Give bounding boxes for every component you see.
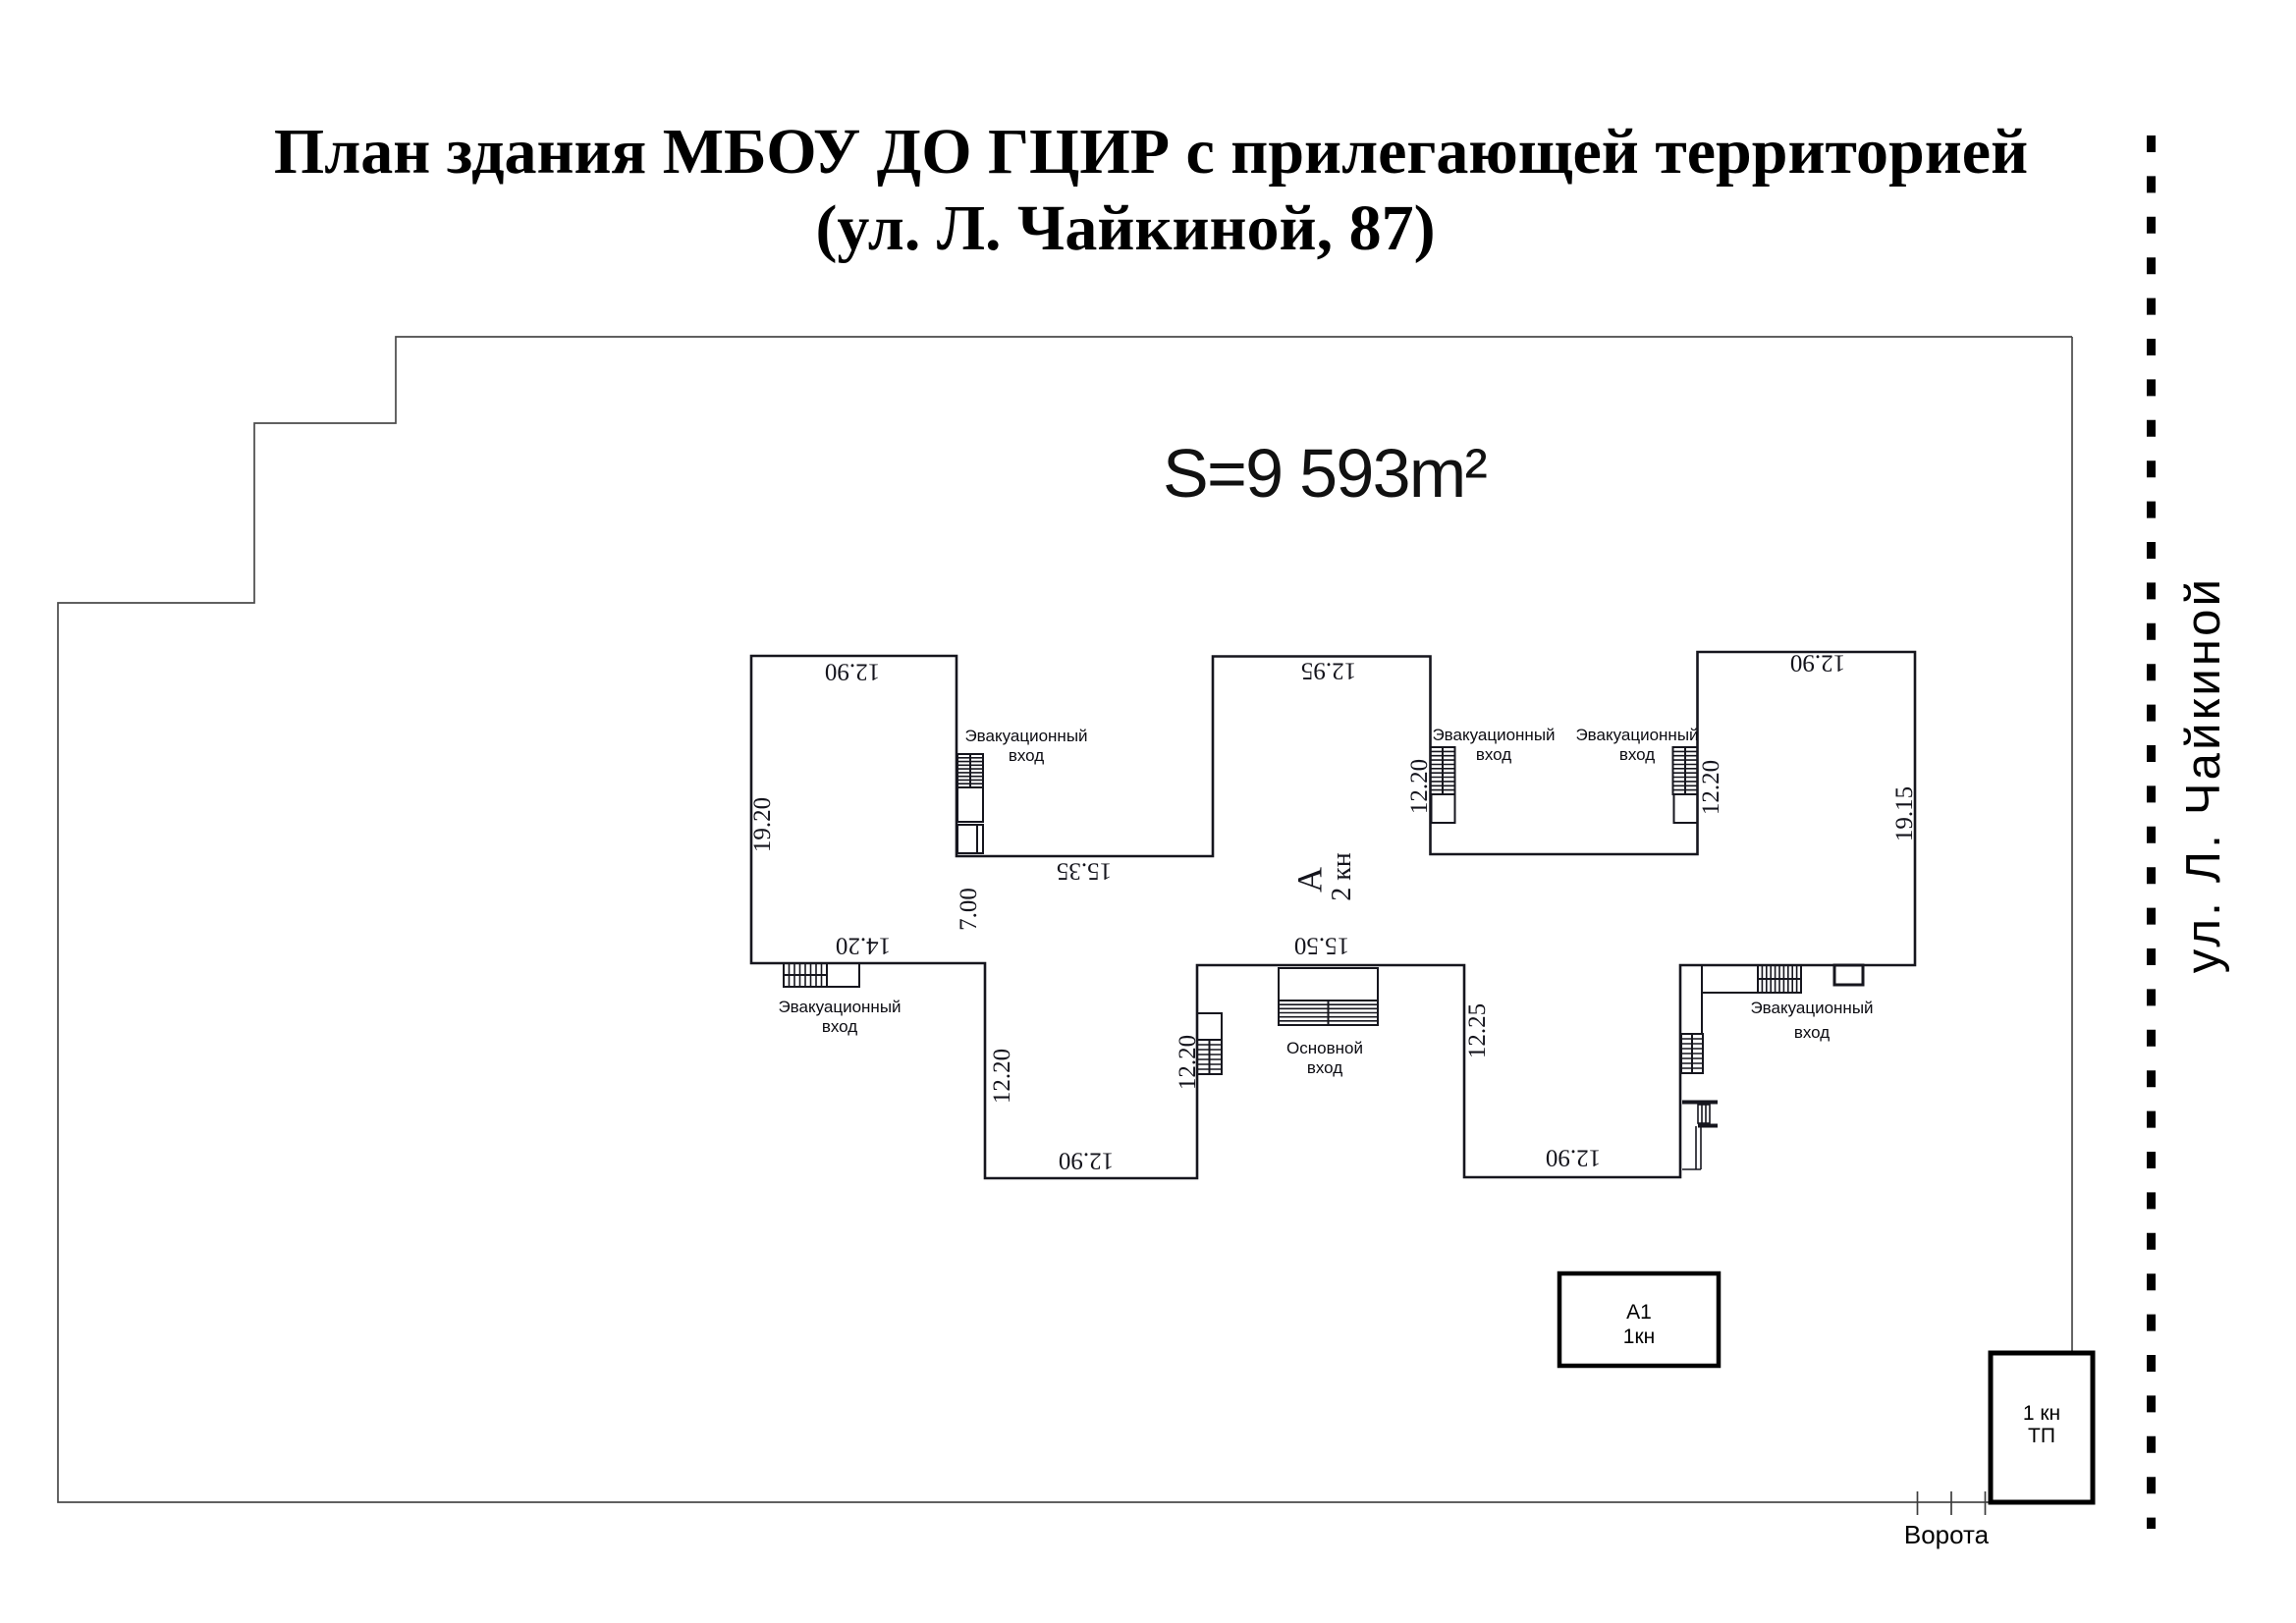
- svg-text:12.90: 12.90: [1059, 1147, 1114, 1173]
- svg-text:(ул. Л. Чайкиной, 87): (ул. Л. Чайкиной, 87): [815, 192, 1435, 264]
- svg-text:Эвакуационный: Эвакуационный: [964, 727, 1087, 745]
- svg-text:вход: вход: [1619, 745, 1655, 764]
- svg-text:19.15: 19.15: [1891, 786, 1918, 841]
- svg-text:ул. Л. Чайкиной: ул. Л. Чайкиной: [2177, 576, 2230, 973]
- svg-text:Эвакуационный: Эвакуационный: [1750, 999, 1873, 1017]
- svg-text:вход: вход: [1794, 1023, 1830, 1042]
- svg-text:12.20: 12.20: [1175, 1035, 1201, 1090]
- svg-text:15.50: 15.50: [1294, 932, 1349, 958]
- svg-text:15.35: 15.35: [1057, 857, 1112, 884]
- svg-text:вход: вход: [1009, 746, 1044, 765]
- svg-text:А: А: [1290, 867, 1330, 893]
- svg-text:2 кн: 2 кн: [1327, 852, 1357, 901]
- svg-text:Эвакуационный: Эвакуационный: [778, 998, 901, 1016]
- svg-text:Эвакуационный: Эвакуационный: [1432, 726, 1555, 744]
- svg-text:Ворота: Ворота: [1904, 1520, 1990, 1549]
- svg-text:14.20: 14.20: [836, 932, 891, 958]
- svg-text:S=9 593m²: S=9 593m²: [1163, 435, 1486, 512]
- svg-text:12.20: 12.20: [989, 1049, 1015, 1104]
- svg-text:А1: А1: [1626, 1301, 1652, 1324]
- svg-text:12.90: 12.90: [1546, 1144, 1601, 1170]
- svg-text:12.20: 12.20: [1406, 759, 1433, 814]
- svg-text:вход: вход: [1307, 1058, 1342, 1077]
- svg-text:12.20: 12.20: [1698, 760, 1724, 815]
- svg-text:12.25: 12.25: [1464, 1003, 1491, 1058]
- svg-text:вход: вход: [1476, 745, 1511, 764]
- svg-text:План здания МБОУ ДО ГЦИР с при: План здания МБОУ ДО ГЦИР с прилегающей т…: [274, 116, 2028, 188]
- svg-text:19.20: 19.20: [749, 797, 776, 852]
- svg-text:1 кн: 1 кн: [2023, 1402, 2060, 1425]
- svg-text:ТП: ТП: [2028, 1425, 2055, 1447]
- svg-text:Основной: Основной: [1286, 1039, 1363, 1057]
- svg-text:12.90: 12.90: [1790, 649, 1845, 676]
- svg-text:1кн: 1кн: [1623, 1325, 1655, 1348]
- svg-text:Эвакуационный: Эвакуационный: [1575, 726, 1698, 744]
- svg-text:7.00: 7.00: [956, 888, 982, 931]
- svg-text:12.90: 12.90: [825, 658, 880, 684]
- svg-text:вход: вход: [822, 1017, 857, 1036]
- svg-text:12.95: 12.95: [1301, 657, 1356, 683]
